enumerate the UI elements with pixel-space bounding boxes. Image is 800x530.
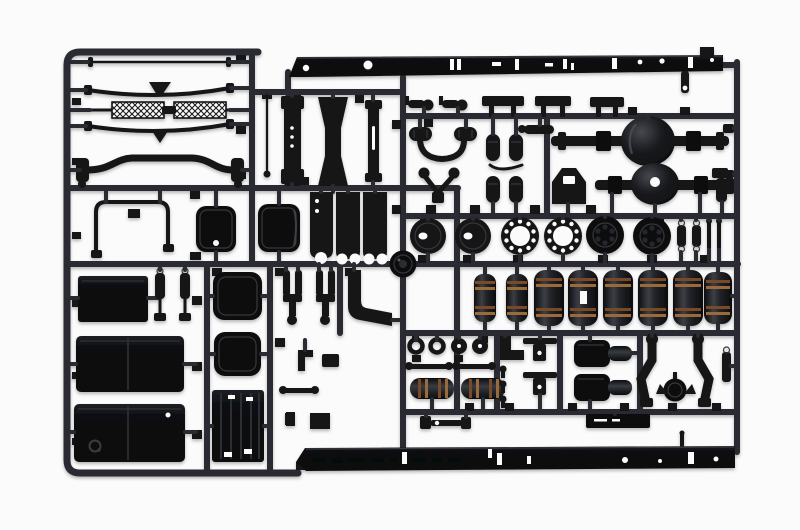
photo-stage — [0, 0, 800, 530]
air-tank-large-5 — [673, 264, 703, 333]
frame-bracket-scalloped-2 — [336, 188, 361, 265]
air-tank-large-3 — [603, 264, 633, 333]
frame-bracket-scalloped-1 — [310, 188, 333, 264]
battery-box-lid-1 — [207, 272, 270, 320]
ribbed-mudflap-panel — [207, 390, 270, 462]
hub-cap-disc — [390, 251, 417, 278]
air-tank-large-1 — [534, 264, 564, 333]
step-panel — [70, 276, 158, 322]
sprue-photo — [0, 0, 800, 530]
chassis-rail-bottom — [296, 446, 737, 471]
heat-shield-bar — [586, 412, 650, 428]
fuel-tank-half-2 — [70, 404, 196, 462]
air-tank-large-2 — [568, 264, 598, 333]
fuel-tank-half-1 — [70, 336, 196, 392]
frame-bracket-scalloped-3 — [363, 188, 388, 265]
cross-member-plate — [281, 92, 304, 188]
air-tank-large-4 — [638, 264, 668, 333]
